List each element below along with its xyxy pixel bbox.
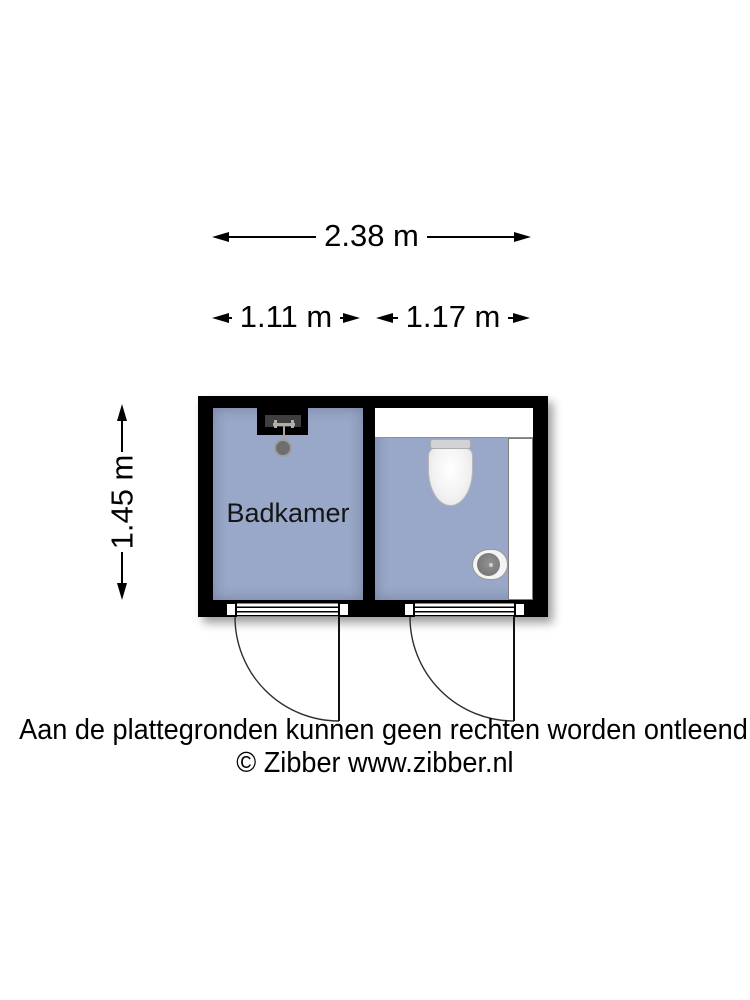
door-swing-right-arc [410,617,514,721]
door-threshold-left [225,602,350,617]
toilet-icon [428,439,473,506]
dim-arrow-right-icon [514,232,531,242]
dimension-left-room-label: 1.11 m [240,301,332,332]
dim-arrow-down-icon [117,583,127,600]
door-sill [415,602,514,617]
footer-disclaimer-text: Aan de plattegronden kunnen geen rechten… [19,714,748,747]
door-jamb [338,602,350,617]
dim-line [427,236,514,238]
wall-panel [508,438,533,600]
door-swing-left-arc [235,617,339,721]
footer-disclaimer-line: Aan de plattegronden kunnen geen rechten… [0,714,750,747]
door-jamb [403,602,415,617]
dim-line [229,236,316,238]
sink-drain [489,563,493,567]
dimension-height: 1.45 m [104,404,140,600]
dimension-height-label: 1.45 m [107,455,138,550]
toilet-bowl [428,447,473,506]
dim-arrow-up-icon [117,404,127,421]
dim-line [229,317,232,319]
room-toilet [375,408,533,600]
dim-line [121,421,123,452]
dim-arrow-left-icon [376,313,393,323]
door-sill [237,602,338,617]
dimension-left-room-width: 1.11 m [212,305,360,331]
dimension-right-room-label: 1.17 m [406,301,501,332]
dim-line [121,552,123,583]
cistern [375,408,533,438]
room-badkamer: Badkamer [213,408,363,600]
footer: Aan de plattegronden kunnen geen rechten… [0,714,750,780]
toilet-lid [430,439,471,449]
door-jamb [514,602,526,617]
footer-copyright-line: © Zibber www.zibber.nl [0,747,750,780]
footer-copyright-text: © Zibber www.zibber.nl [236,747,513,780]
dim-arrow-right-icon [513,313,530,323]
dim-arrow-left-icon [212,313,229,323]
door-threshold-right [403,602,526,617]
floorplan: Badkamer [198,396,548,617]
dim-line [393,317,398,319]
dimension-total-width-label: 2.38 m [324,220,419,251]
door-jamb [225,602,237,617]
room-badkamer-label: Badkamer [213,500,363,527]
dimension-right-room-width: 1.17 m [376,305,530,331]
sink-icon [472,549,508,580]
dimension-total-width: 2.38 m [212,224,531,250]
dim-arrow-right-icon [343,313,360,323]
shower-head-icon [274,439,292,457]
dim-arrow-left-icon [212,232,229,242]
